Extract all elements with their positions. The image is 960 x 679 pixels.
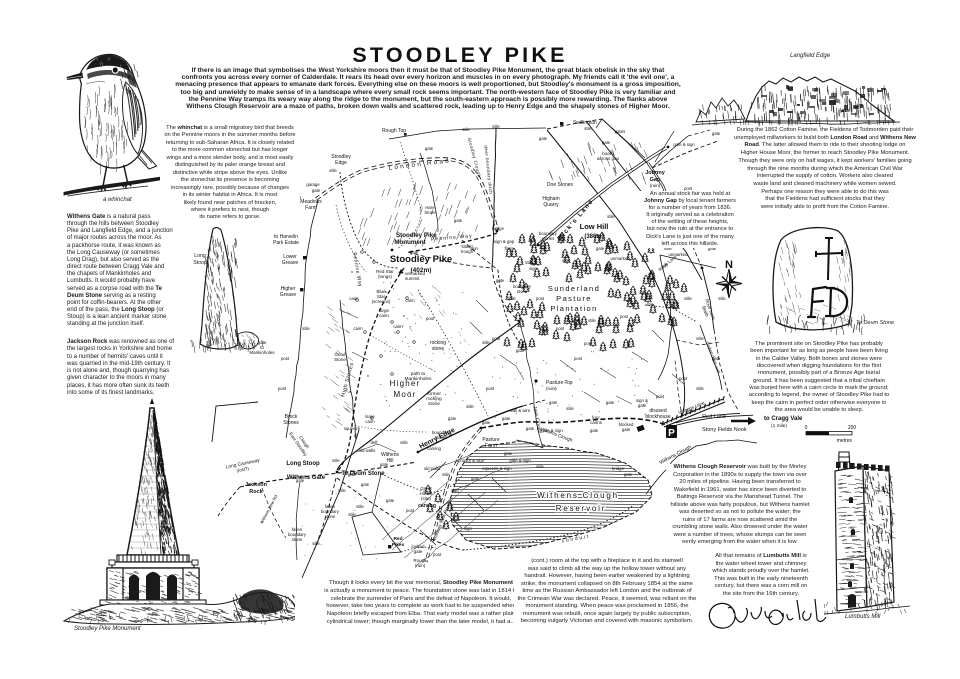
svg-text:Withens Clough: Withens Clough <box>659 444 693 466</box>
svg-text:stile: stile <box>588 318 596 323</box>
svg-text:flags: flags <box>504 246 513 251</box>
svg-text:gate & sign: gate & sign <box>509 458 531 463</box>
svg-text:gate: gate <box>686 408 695 413</box>
svg-text:stone: stone <box>517 289 528 294</box>
svg-text:gate: gate <box>526 426 535 431</box>
svg-text:Red: Red <box>393 536 402 542</box>
svg-text:sign: sign <box>529 266 537 271</box>
svg-text:gate & sign: gate & sign <box>541 428 563 433</box>
svg-text:gate: gate <box>606 400 615 405</box>
svg-text:(tongs): (tongs) <box>378 274 393 279</box>
svg-text:Pikes: Pikes <box>392 542 405 548</box>
svg-text:stile: stile <box>566 406 574 411</box>
svg-text:gate: gate <box>504 451 513 456</box>
svg-text:200: 200 <box>848 425 857 431</box>
svg-text:gate: gate <box>602 140 611 145</box>
svg-text:Stoop: Stoop <box>193 260 207 266</box>
svg-text:Low Hill: Low Hill <box>580 222 609 231</box>
svg-text:gate: gate <box>296 478 305 483</box>
svg-text:bridge: bridge <box>492 226 505 231</box>
svg-text:0: 0 <box>805 425 808 431</box>
svg-text:stile: stile <box>718 296 726 301</box>
svg-text:gate: gate <box>414 549 423 554</box>
svg-text:stile: stile <box>696 336 704 341</box>
svg-text:stone: stone <box>432 346 444 352</box>
svg-text:gate: gate <box>482 420 491 425</box>
svg-text:stile: stile <box>525 260 533 265</box>
svg-text:Farm: Farm <box>485 443 497 449</box>
svg-text:(ruin): (ruin) <box>546 386 557 391</box>
svg-text:Pennine Way: Pennine Way <box>431 233 473 243</box>
svg-text:sign & gap: sign & gap <box>494 239 515 244</box>
svg-text:cairn: cairn <box>379 313 389 318</box>
svg-text:gate: gate <box>348 472 357 477</box>
svg-text:post: post <box>486 386 495 391</box>
svg-text:gate: gate <box>471 476 480 481</box>
svg-text:old walls: old walls <box>359 448 375 453</box>
svg-text:gate: gate <box>622 427 631 432</box>
svg-text:Long: Long <box>194 253 206 259</box>
svg-text:stile: stile <box>562 258 570 263</box>
svg-text:Stone: Stone <box>424 210 436 215</box>
svg-text:(ruin): (ruin) <box>650 183 661 188</box>
svg-text:post: post <box>656 394 665 399</box>
svg-text:Greave: Greave <box>282 260 299 266</box>
svg-text:Mankinholes: Mankinholes <box>405 376 433 382</box>
svg-text:gate: gate <box>539 136 548 141</box>
svg-text:stone: stone <box>325 514 336 519</box>
svg-text:post: post <box>278 386 287 391</box>
svg-text:Sunderland: Sunderland <box>548 284 600 293</box>
svg-text:(ruin): (ruin) <box>415 563 426 568</box>
svg-text:across gap: across gap <box>597 156 620 161</box>
svg-text:post: post <box>679 376 688 381</box>
svg-text:Stony Fields Nook: Stony Fields Nook <box>702 427 747 433</box>
svg-text:stone: stone <box>292 537 303 542</box>
svg-text:sign: sign <box>451 488 459 493</box>
svg-text:pool: pool <box>426 316 434 321</box>
svg-text:old walls: old walls <box>424 466 440 471</box>
svg-text:post: post <box>556 326 565 331</box>
svg-text:wall & wire: wall & wire <box>510 408 531 413</box>
svg-text:stile: stile <box>442 472 450 477</box>
svg-text:Farm: Farm <box>305 205 317 211</box>
svg-text:stile: stile <box>348 512 356 517</box>
svg-text:Quarry: Quarry <box>543 202 559 208</box>
svg-text:cairn: cairn <box>393 324 403 329</box>
svg-text:stile: stile <box>646 302 654 307</box>
svg-text:gate: gate <box>549 400 558 405</box>
svg-text:carving: carving <box>427 446 441 451</box>
svg-text:stones: stones <box>542 236 555 241</box>
svg-text:gate: gate <box>496 278 505 283</box>
svg-text:stile: stile <box>482 340 490 345</box>
svg-text:pool: pool <box>492 336 500 341</box>
svg-text:post: post <box>574 356 583 361</box>
svg-text:stile: stile <box>536 464 544 469</box>
svg-text:cairns: cairns <box>590 420 603 425</box>
svg-text:Stones: Stones <box>283 420 299 426</box>
svg-text:Park Estate: Park Estate <box>273 240 299 246</box>
svg-text:(386m): (386m) <box>584 234 603 240</box>
svg-text:Mankinholes: Mankinholes <box>249 350 275 355</box>
svg-text:Moor: Moor <box>393 390 416 399</box>
svg-text:Stoodley Pike: Stoodley Pike <box>390 254 452 265</box>
svg-text:(site): (site) <box>421 496 432 501</box>
svg-text:unmarked: unmarked <box>610 256 630 261</box>
svg-text:Edge: Edge <box>335 160 347 166</box>
svg-text:summit: summit <box>405 276 420 281</box>
svg-text:stile: stile <box>356 504 364 509</box>
svg-text:gate: gate <box>638 403 647 408</box>
svg-text:gate: gate <box>712 131 721 136</box>
svg-text:stile: stile <box>508 296 516 301</box>
svg-text:stile: stile <box>462 127 470 132</box>
svg-text:to Cragg Vale: to Cragg Vale <box>764 416 803 422</box>
svg-text:Stone: Stone <box>334 357 346 362</box>
svg-text:Red Lane: Red Lane <box>702 414 726 420</box>
svg-text:gate: gate <box>502 416 511 421</box>
svg-text:Doe Stones: Doe Stones <box>547 182 574 188</box>
svg-text:post: post <box>584 341 593 346</box>
svg-text:stile: stile <box>584 126 592 131</box>
svg-text:Rough Top: Rough Top <box>382 128 406 134</box>
svg-text:cairn: cairn <box>349 296 359 301</box>
svg-text:stile: stile <box>684 296 692 301</box>
svg-text:post: post <box>406 508 415 513</box>
svg-text:delf: delf <box>371 440 379 445</box>
svg-text:conduit: conduit <box>561 534 590 545</box>
svg-text:(screens): (screens) <box>372 299 391 304</box>
svg-text:gate & sign: gate & sign <box>673 142 695 147</box>
svg-text:gate: gate <box>448 416 457 421</box>
svg-text:stile: stile <box>338 488 346 493</box>
svg-text:stile: stile <box>696 386 704 391</box>
svg-text:Pennine Way: Pennine Way <box>351 252 363 288</box>
svg-text:stile: stile <box>492 124 500 129</box>
svg-text:deer boundary ditch: deer boundary ditch <box>483 145 493 195</box>
svg-text:Long Stoop: Long Stoop <box>286 461 320 467</box>
svg-text:post: post <box>433 552 442 557</box>
svg-text:Withens Clough: Withens Clough <box>537 491 619 500</box>
svg-text:stile: stile <box>329 168 337 173</box>
svg-text:sponsor & sign: sponsor & sign <box>456 458 485 463</box>
svg-text:cairn: cairn <box>353 326 363 331</box>
svg-text:cairn: cairn <box>405 298 415 303</box>
svg-text:stones: stones <box>435 435 448 440</box>
svg-text:stile: stile <box>400 440 408 445</box>
svg-text:cairn: cairn <box>365 419 375 424</box>
svg-text:gate: gate <box>712 356 721 361</box>
svg-text:stile: stile <box>332 458 340 463</box>
svg-text:squeeze & sign: squeeze & sign <box>482 466 512 471</box>
svg-text:gate: gate <box>596 246 605 251</box>
svg-text:stone: stone <box>428 401 440 407</box>
svg-text:Plantation: Plantation <box>550 304 597 313</box>
svg-text:Pasture: Pasture <box>556 294 592 303</box>
svg-text:metres: metres <box>837 438 853 444</box>
svg-text:P: P <box>668 428 675 439</box>
svg-text:Withens Gate: Withens Gate <box>287 475 326 481</box>
svg-text:garage: garage <box>306 182 320 187</box>
svg-text:Reservoir: Reservoir <box>556 504 606 513</box>
svg-text:sign: sign <box>464 526 472 531</box>
svg-text:Monument: Monument <box>394 239 425 246</box>
svg-text:stile: stile <box>607 214 615 219</box>
svg-text:gates: gates <box>615 129 626 134</box>
svg-text:post: post <box>536 296 545 301</box>
svg-text:gate: gate <box>380 462 389 467</box>
svg-text:post: post <box>620 314 629 319</box>
svg-text:gate: gate <box>425 146 434 151</box>
svg-text:stile: stile <box>302 326 310 331</box>
svg-text:gate: gate <box>454 218 463 223</box>
svg-text:(1 mile): (1 mile) <box>771 423 787 429</box>
svg-text:Greave: Greave <box>280 292 297 298</box>
svg-text:gate: gate <box>361 482 370 487</box>
svg-text:bridge: bridge <box>612 466 625 471</box>
svg-text:gate: gate <box>312 188 321 193</box>
svg-text:sign: sign <box>470 246 478 251</box>
svg-text:Johnny: Johnny <box>645 170 665 176</box>
svg-text:blockhouse: blockhouse <box>645 414 671 420</box>
svg-text:carving: carving <box>418 503 436 509</box>
svg-text:Jackson: Jackson <box>245 482 268 488</box>
svg-text:post: post <box>281 356 290 361</box>
svg-text:stile: stile <box>466 404 474 409</box>
svg-text:gate: gate <box>386 498 395 503</box>
svg-text:Rock: Rock <box>249 489 263 495</box>
svg-text:gate: gate <box>624 472 633 477</box>
svg-text:squeeze: squeeze <box>344 426 361 431</box>
svg-text:unmarked: unmarked <box>668 252 688 257</box>
svg-text:gate: gate <box>516 348 525 353</box>
svg-text:gate: gate <box>410 250 419 255</box>
svg-text:gate: gate <box>590 428 599 433</box>
